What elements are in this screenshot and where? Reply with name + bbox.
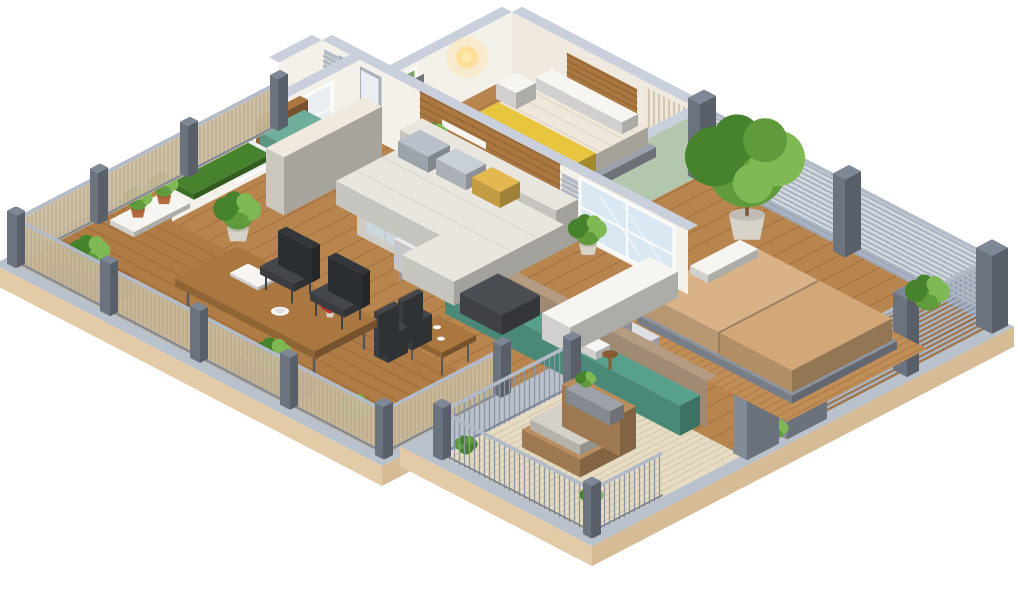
- breakfast-dish-a: [433, 325, 441, 329]
- dining-plate-center: [275, 308, 285, 313]
- louver-post-c: [976, 239, 1008, 334]
- bedroom-sconce: [446, 37, 488, 79]
- floorplan-stage: [0, 0, 1018, 594]
- isometric-floorplan-render: [0, 0, 1018, 594]
- louver-post-b: [833, 165, 861, 258]
- side-table-goblet: [602, 350, 618, 358]
- breakfast-chair-b-back: [374, 301, 399, 358]
- breakfast-dish-b: [437, 337, 445, 341]
